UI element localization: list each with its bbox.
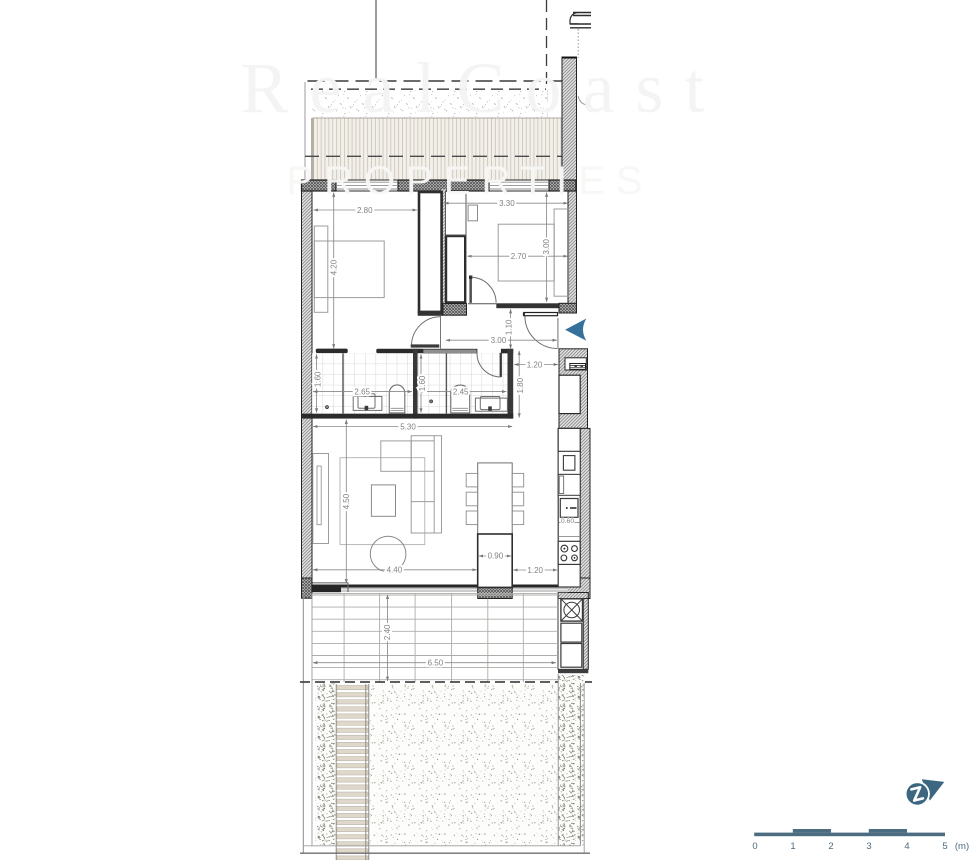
- svg-text:0: 0: [752, 841, 757, 852]
- svg-text:1: 1: [790, 841, 795, 852]
- svg-text:2: 2: [828, 841, 833, 852]
- svg-text:RealCoast: RealCoast: [241, 48, 726, 128]
- svg-text:2.80: 2.80: [357, 206, 373, 215]
- svg-text:5: 5: [942, 841, 947, 852]
- svg-text:3: 3: [866, 841, 871, 852]
- svg-text:1.10: 1.10: [504, 319, 513, 335]
- svg-text:PROPERTIES: PROPERTIES: [286, 159, 653, 203]
- svg-text:3.00: 3.00: [542, 238, 551, 254]
- svg-text:4.40: 4.40: [387, 566, 403, 575]
- svg-text:1.20: 1.20: [527, 566, 543, 575]
- svg-text:0.90: 0.90: [488, 551, 504, 560]
- svg-text:(m): (m): [955, 841, 969, 852]
- svg-text:6.50: 6.50: [428, 659, 444, 668]
- svg-text:2.70: 2.70: [511, 252, 527, 261]
- svg-text:5.30: 5.30: [400, 422, 416, 431]
- svg-text:4: 4: [904, 841, 909, 852]
- svg-text:2.45: 2.45: [453, 387, 469, 396]
- svg-text:1.20: 1.20: [527, 360, 543, 369]
- svg-text:3.00: 3.00: [491, 336, 507, 345]
- svg-text:4.50: 4.50: [342, 493, 351, 509]
- svg-text:1.60: 1.60: [418, 375, 427, 391]
- svg-text:1.80: 1.80: [516, 377, 525, 393]
- svg-text:2.65: 2.65: [354, 387, 370, 396]
- svg-text:2.40: 2.40: [383, 624, 392, 640]
- svg-text:1.60: 1.60: [313, 371, 322, 387]
- svg-text:4.20: 4.20: [330, 259, 339, 275]
- svg-text:0.60: 0.60: [561, 518, 574, 525]
